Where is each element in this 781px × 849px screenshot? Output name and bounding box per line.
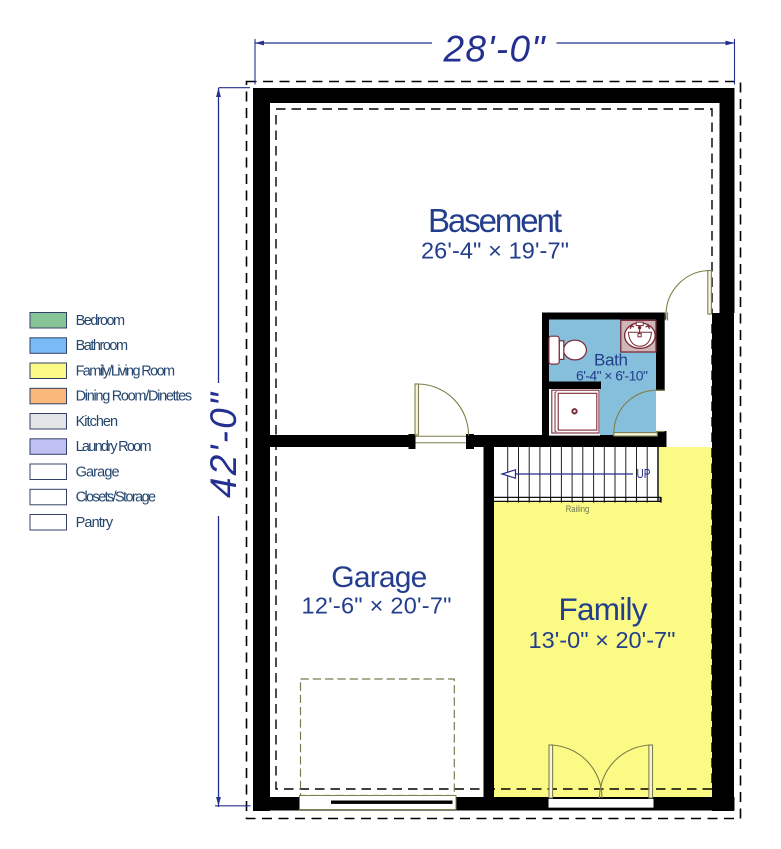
svg-text:12'-6" × 20'-7": 12'-6" × 20'-7" (302, 593, 452, 619)
svg-text:Garage: Garage (331, 561, 427, 594)
svg-text:Laundry Room: Laundry Room (76, 439, 152, 455)
svg-text:6'-4" × 6'-10": 6'-4" × 6'-10" (576, 368, 648, 384)
svg-text:Railing: Railing (566, 504, 590, 515)
svg-text:Family/Living Room: Family/Living Room (76, 363, 176, 379)
svg-text:26'-4" × 19'-7": 26'-4" × 19'-7" (421, 238, 569, 264)
svg-text:UP: UP (637, 467, 651, 481)
svg-text:Dining Room/Dinettes: Dining Room/Dinettes (76, 389, 193, 405)
svg-text:Bedroom: Bedroom (76, 313, 126, 329)
svg-text:Basement: Basement (428, 202, 562, 239)
svg-text:Kitchen: Kitchen (76, 414, 119, 430)
svg-text:Pantry: Pantry (76, 515, 114, 531)
svg-text:Bathroom: Bathroom (76, 338, 129, 354)
svg-text:13'-0" × 20'-7": 13'-0" × 20'-7" (529, 627, 676, 653)
svg-text:Garage: Garage (76, 464, 120, 480)
svg-text:Family: Family (559, 591, 648, 627)
svg-text:Closets/Storage: Closets/Storage (76, 490, 157, 506)
